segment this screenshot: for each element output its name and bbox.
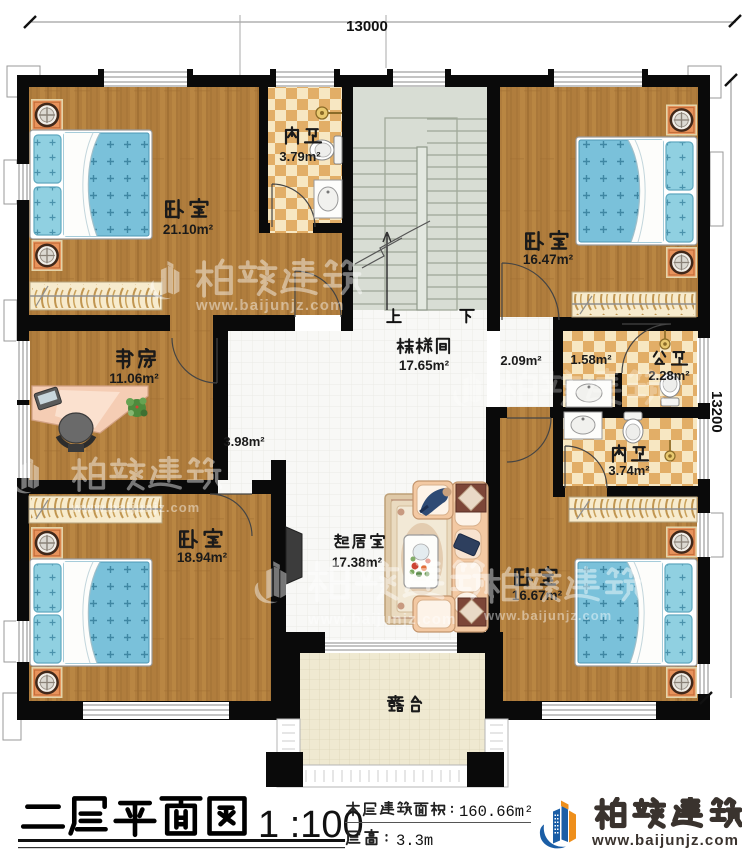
svg-text:13000: 13000 — [346, 18, 388, 35]
svg-text:17.65m²: 17.65m² — [399, 358, 450, 373]
svg-text:16.47m²: 16.47m² — [523, 252, 574, 267]
svg-text:3.74m²: 3.74m² — [608, 463, 650, 478]
svg-text:3.3m: 3.3m — [396, 832, 433, 850]
svg-text:160.66m²: 160.66m² — [459, 803, 533, 821]
svg-text:www.baijunjz.com: www.baijunjz.com — [195, 297, 345, 314]
svg-text:13200: 13200 — [708, 391, 725, 433]
svg-text:www.baijunjz.com: www.baijunjz.com — [483, 608, 612, 623]
svg-text:16.67m²: 16.67m² — [512, 588, 563, 603]
svg-text:21.10m²: 21.10m² — [163, 222, 214, 237]
svg-text:www.baijunjz.com: www.baijunjz.com — [307, 611, 457, 628]
svg-text:2.09m²: 2.09m² — [500, 353, 542, 368]
svg-text:1.58m²: 1.58m² — [570, 352, 612, 367]
svg-text:3.79m²: 3.79m² — [279, 149, 321, 164]
svg-text:www.baijunjz.com: www.baijunjz.com — [591, 832, 739, 849]
svg-text:www.baijunjz.com: www.baijunjz.com — [71, 500, 200, 515]
svg-text:11.06m²: 11.06m² — [109, 371, 159, 386]
svg-text:3.98m²: 3.98m² — [223, 434, 265, 449]
svg-text:18.94m²: 18.94m² — [177, 550, 228, 565]
